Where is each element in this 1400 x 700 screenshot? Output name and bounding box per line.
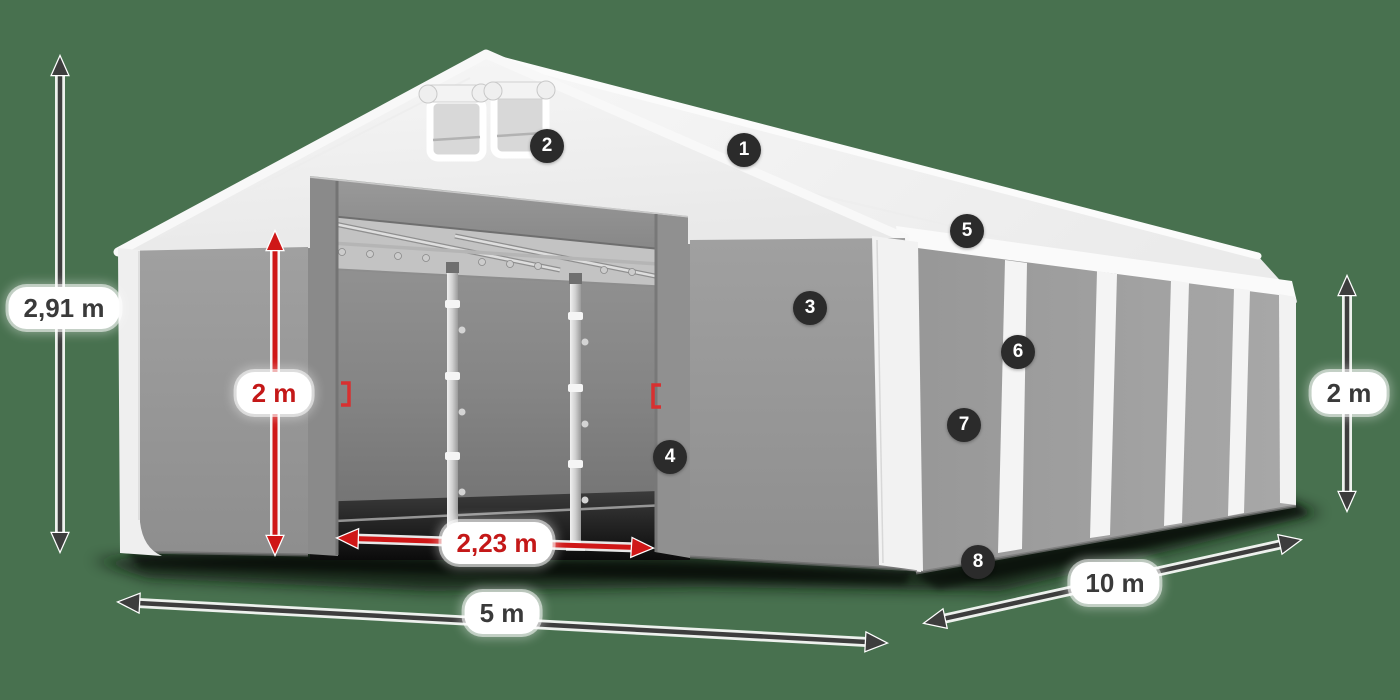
dimension-inner-height: 2 m [237,372,312,414]
door-left-jamb [308,178,338,556]
hotspot-3[interactable]: 3 [793,291,827,325]
dimension-total-height: 2,91 m [9,287,120,329]
hotspot-4[interactable]: 4 [653,440,687,474]
tent-diagram-stage: 2,91 m 2 m 2,23 m 2 m 5 m 10 m 1 2 3 4 5… [0,0,1400,700]
hotspot-7[interactable]: 7 [947,408,981,442]
dimension-side-height: 2 m [1312,372,1387,414]
hotspot-5[interactable]: 5 [950,214,984,248]
hotspot-1[interactable]: 1 [727,133,761,167]
dimension-width: 5 m [465,592,540,634]
side-corner-strip [1279,294,1296,505]
hotspot-2[interactable]: 2 [530,129,564,163]
front-wall-right-panel [690,236,923,571]
dimension-door-width: 2,23 m [442,522,553,564]
hotspot-8[interactable]: 8 [961,545,995,579]
dimension-length: 10 m [1070,562,1159,604]
hotspot-6[interactable]: 6 [1001,335,1035,369]
tent-illustration [0,0,1400,700]
